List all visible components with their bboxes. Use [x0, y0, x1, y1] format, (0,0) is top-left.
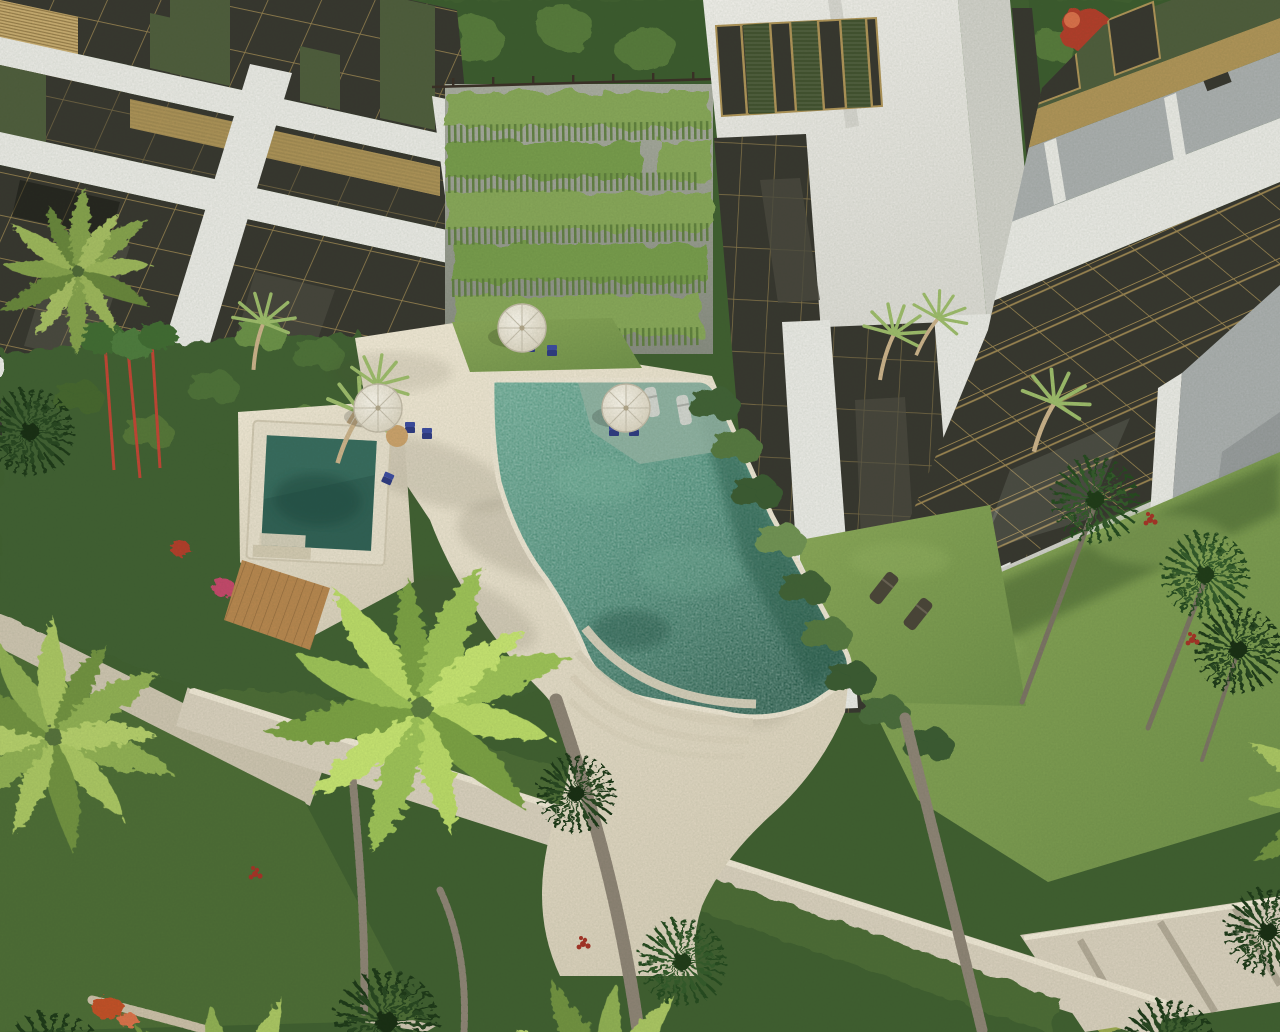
photo-grain-overlay: [0, 0, 1280, 1032]
aerial-courtyard-render: [0, 0, 1280, 1032]
render-canvas: [0, 0, 1280, 1032]
